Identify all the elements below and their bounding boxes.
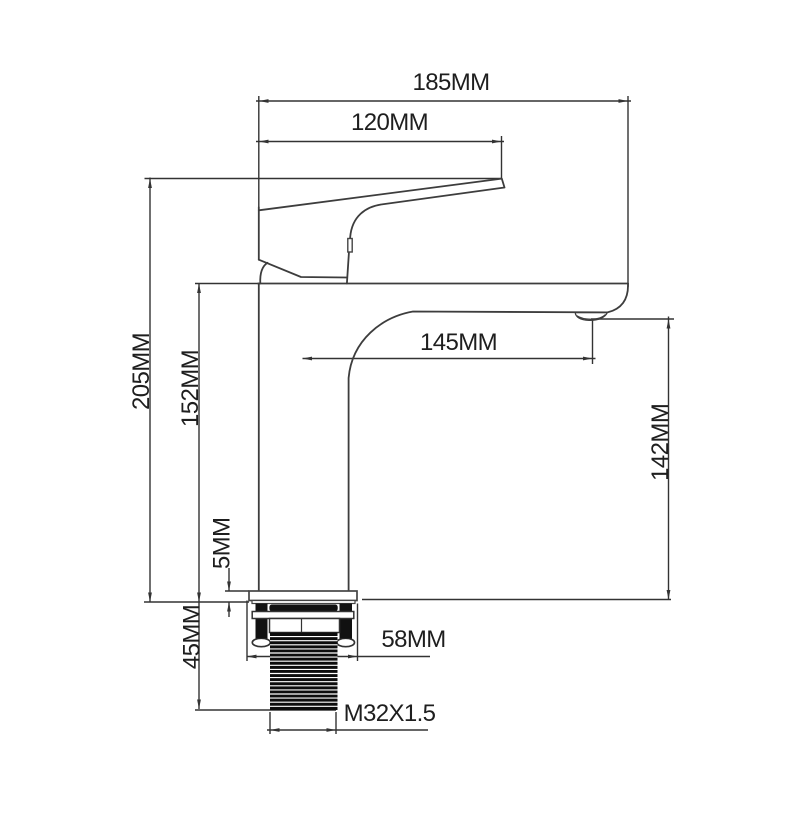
svg-text:185MM: 185MM [412, 69, 489, 96]
svg-text:145MM: 145MM [420, 329, 497, 356]
svg-text:58MM: 58MM [381, 626, 445, 653]
svg-text:205MM: 205MM [128, 333, 155, 410]
svg-text:M32X1.5: M32X1.5 [344, 700, 436, 727]
svg-text:142MM: 142MM [647, 404, 674, 481]
svg-text:120MM: 120MM [351, 109, 428, 136]
svg-text:152MM: 152MM [177, 350, 204, 427]
svg-text:5MM: 5MM [209, 518, 236, 570]
svg-text:45MM: 45MM [179, 605, 206, 669]
